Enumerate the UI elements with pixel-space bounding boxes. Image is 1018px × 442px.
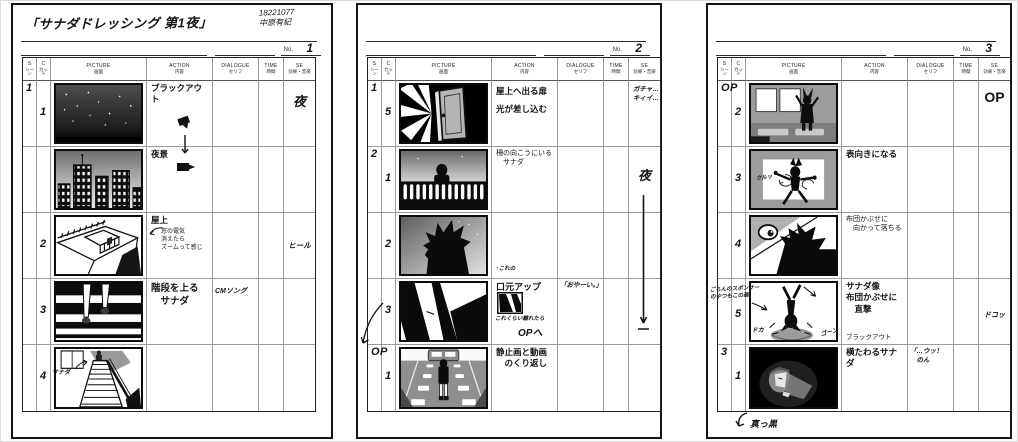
- lying-dark-drawing: [751, 349, 836, 407]
- col-header-time: TIME時間: [954, 58, 979, 81]
- col-header-se: SE効果・音楽: [979, 58, 1010, 81]
- header-line-2: [894, 55, 954, 56]
- action-text: 表向きになる: [842, 147, 907, 162]
- header-line-1: [716, 55, 886, 56]
- cut-number: 3: [37, 305, 50, 316]
- cut-number: 3: [732, 173, 745, 184]
- thumbnail-sketch: [497, 292, 523, 314]
- page-no-underline: [610, 55, 650, 56]
- climbing-feet-drawing: [56, 283, 141, 340]
- margin-note-arrow-icon: [750, 301, 770, 313]
- picture-climbing-feet: [51, 279, 147, 345]
- picture-railing-silhouette: [396, 147, 492, 213]
- page-no-underline: [281, 55, 321, 56]
- night-duration-arrow: [637, 195, 650, 337]
- picture-mouth-closeup: [396, 279, 492, 345]
- cut-number: 2: [37, 239, 50, 250]
- page-no-label: No.: [613, 47, 622, 53]
- picture-sfx-left: ドカ: [752, 325, 764, 334]
- title-underline: [366, 41, 646, 42]
- cut-number: 1: [382, 173, 395, 184]
- storyboard-table: Sシーン Cカット PICTURE画面 ACTION内容 DIALOGUEセリフ…: [717, 57, 1011, 412]
- picture-lying-dark: [746, 345, 842, 411]
- picture-rooftop: [51, 213, 147, 279]
- cut-number: 4: [732, 239, 745, 250]
- dialogue-text: 「…ウッ！ のん: [908, 345, 953, 369]
- picture-city-night: [51, 147, 147, 213]
- action-text: 階段を上る サナダ: [147, 279, 212, 311]
- storyboard-page-2: No. 2 Sシーン Cカット PICTURE画面 ACTION内容 DIALO…: [356, 3, 662, 439]
- col-header-picture: PICTURE画面: [51, 58, 147, 81]
- road-figure-drawing: [401, 349, 486, 407]
- cut-pointer-arrow-icon: [359, 301, 385, 347]
- door-light-drawing: [401, 85, 486, 142]
- below-note-arrow-icon: [734, 411, 750, 431]
- col-header-scene: Sシーン: [718, 58, 732, 81]
- cut-number: 2: [382, 239, 395, 250]
- col-header-time: TIME時間: [259, 58, 284, 81]
- scene-number: 3: [718, 347, 731, 358]
- se-text: 夜: [284, 81, 315, 114]
- scene-number: 1: [368, 83, 381, 94]
- page-number: 3: [985, 41, 992, 55]
- cut-number: 1: [732, 371, 745, 382]
- picture-eye-falling: [746, 213, 842, 279]
- page-title: 「サナダドレッシング 第1夜」: [25, 12, 213, 33]
- action-note: ↑これの: [496, 266, 515, 273]
- action-text: 静止画と動画 のくり返し: [492, 345, 557, 372]
- storyboard-table: Sシーン Cカット PICTURE画面 ACTION内容 DIALOGUEセリフ…: [22, 57, 316, 412]
- col-header-se: SE効果・音楽: [284, 58, 315, 81]
- sponsor-margin-note: ごらんのスポンサー のやつもこの画: [710, 284, 769, 301]
- cut-number: 5: [382, 107, 395, 118]
- col-header-cut: Cカット: [732, 58, 746, 81]
- storyboard-table: Sシーン Cカット PICTURE画面 ACTION内容 DIALOGUEセリフ…: [367, 57, 661, 412]
- header-line-1: [366, 55, 536, 56]
- title-underline: [21, 41, 317, 42]
- page-no-label: No.: [284, 47, 293, 53]
- rooftop-drawing: [56, 217, 141, 274]
- header-line-2: [544, 55, 604, 56]
- storyboard-scan: 「サナダドレッシング 第1夜」 18221077 中原有紀 No. 1 Sシーン…: [0, 0, 1018, 442]
- picture-turning-figure: クルッ: [746, 147, 842, 213]
- stairway-drawing: [56, 349, 141, 407]
- se-text: ドコッ: [979, 279, 1010, 323]
- room-figure-drawing: [751, 85, 836, 142]
- cut-number: 2: [732, 107, 745, 118]
- action-text: 横たわるサナダ: [842, 345, 907, 372]
- col-header-scene: Sシーン: [23, 58, 37, 81]
- action-note-op: OPへ: [518, 324, 542, 339]
- action-text: サナダ像 布団かぶせに 直撃: [842, 279, 907, 317]
- picture-stairway: サナダ: [51, 345, 147, 411]
- col-header-cut: Cカット: [382, 58, 396, 81]
- storyboard-page-3: No. 3 Sシーン Cカット PICTURE画面 ACTION内容 DIALO…: [706, 3, 1012, 439]
- col-header-action: ACTION内容: [492, 58, 558, 81]
- col-header-picture: PICTURE画面: [746, 58, 842, 81]
- cut-number: 5: [732, 309, 745, 320]
- scene-number: 1: [23, 81, 37, 147]
- col-header-time: TIME時間: [604, 58, 629, 81]
- author-name: 中原有紀: [259, 17, 295, 28]
- header-line-2: [215, 55, 275, 56]
- page-number: 1: [306, 41, 313, 55]
- col-header-picture: PICTURE画面: [396, 58, 492, 81]
- mouth-closeup-drawing: [401, 283, 486, 340]
- col-header-action: ACTION内容: [842, 58, 908, 81]
- dialogue-text: 「おやーい。」: [558, 279, 603, 294]
- col-header-cut: Cカット: [37, 58, 51, 81]
- scene-number: OP: [368, 347, 381, 358]
- action-text: ブラックアウト: [147, 81, 212, 108]
- author-credit: 18221077 中原有紀: [259, 7, 295, 28]
- storyboard-page-1: 「サナダドレッシング 第1夜」 18221077 中原有紀 No. 1 Sシーン…: [11, 3, 333, 439]
- col-header-se: SE効果・音楽: [629, 58, 660, 81]
- railing-silhouette-drawing: [401, 151, 486, 208]
- dialogue-text: CMソング: [213, 279, 258, 299]
- picture-room-figure: [746, 81, 842, 147]
- picture-label: サナダ: [52, 367, 70, 376]
- picture-night-sky: [51, 81, 147, 147]
- action-note: ブラックアウト: [846, 331, 892, 341]
- col-header-dialogue: DIALOGUEセリフ: [558, 58, 604, 81]
- page-no-label: No.: [963, 47, 972, 53]
- col-header-dialogue: DIALOGUEセリフ: [213, 58, 259, 81]
- picture-profile-silhouette: [396, 213, 492, 279]
- action-text: 柵の向こうにいる サナダ: [492, 147, 557, 170]
- eye-falling-drawing: [751, 217, 836, 274]
- cut-number: 1: [37, 81, 51, 147]
- se-text: ガチャ… キィイ…: [629, 81, 660, 106]
- cut-number: 4: [37, 371, 50, 382]
- cut-number: 1: [382, 371, 395, 382]
- col-header-action: ACTION内容: [147, 58, 213, 81]
- night-sky-drawing: [56, 85, 141, 142]
- picture-road-figure: [396, 345, 492, 411]
- page-no-underline: [960, 55, 1000, 56]
- col-header-dialogue: DIALOGUEセリフ: [908, 58, 954, 81]
- header-line-1: [21, 55, 207, 56]
- title-underline: [716, 41, 996, 42]
- page-number: 2: [635, 41, 642, 55]
- se-text: ヒール: [284, 213, 315, 254]
- label-arrow-icon: [73, 359, 89, 371]
- camera-tilt-icon: [175, 115, 197, 191]
- action-note: これくらい離れたら: [495, 316, 545, 323]
- col-header-scene: Sシーン: [368, 58, 382, 81]
- scene-number: 2: [368, 149, 381, 160]
- pointer-arrow-icon: [148, 225, 164, 237]
- action-note: 窓の電気 消えたら ズームって感じ: [161, 229, 212, 252]
- action-text: 布団かぶせに 向かって落ちる: [842, 213, 907, 236]
- se-text: OP: [979, 81, 1010, 109]
- se-text: 夜: [629, 147, 660, 188]
- pitch-black-note: 真っ黒: [750, 417, 777, 430]
- city-night-drawing: [56, 151, 141, 208]
- scene-number: OP: [718, 83, 731, 94]
- picture-door-light: [396, 81, 492, 147]
- action-text: 屋上へ出る扉 光が差し込む: [492, 81, 557, 121]
- profile-silhouette-drawing: [401, 217, 486, 274]
